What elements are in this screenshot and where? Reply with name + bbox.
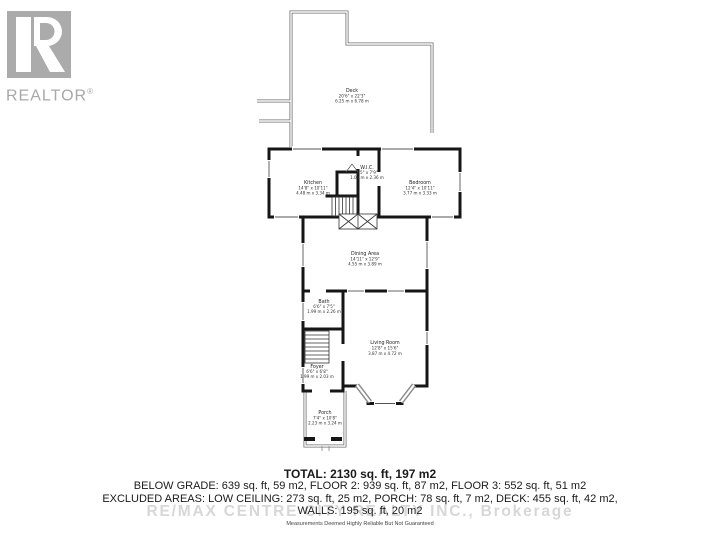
room-label-living: Living Room 12'8" x 15'6" 3.87 m x 4.72 … xyxy=(368,340,402,356)
room-label-deck: Deck 20'6" x 22'3" 6.25 m x 6.78 m xyxy=(335,88,369,104)
floor-plan: Deck 20'6" x 22'3" 6.25 m x 6.78 m Kitch… xyxy=(0,0,720,540)
svg-text:1.04 m x 2.36 m: 1.04 m x 2.36 m xyxy=(350,175,384,180)
svg-text:12'8" x 15'6": 12'8" x 15'6" xyxy=(372,346,399,351)
svg-text:4.55 m x 3.89 m: 4.55 m x 3.89 m xyxy=(348,262,382,267)
svg-text:1.99 m x 2.26 m: 1.99 m x 2.26 m xyxy=(307,309,341,314)
room-label-porch: Porch 7'4" x 10'8" 2.23 m x 3.24 m xyxy=(308,410,342,426)
svg-text:6.25 m x 6.78 m: 6.25 m x 6.78 m xyxy=(335,99,369,104)
staircase-lower xyxy=(305,331,329,363)
svg-text:3.77 m x 3.33 m: 3.77 m x 3.33 m xyxy=(403,191,437,196)
staircase-upper xyxy=(332,197,357,216)
summary-floors: BELOW GRADE: 639 sq. ft, 59 m2, FLOOR 2:… xyxy=(0,480,720,492)
svg-text:3.87 m x 4.72 m: 3.87 m x 4.72 m xyxy=(368,351,402,356)
svg-text:2.23 m x 3.24 m: 2.23 m x 3.24 m xyxy=(308,421,342,426)
low-ceiling-hatch xyxy=(339,214,377,229)
svg-text:4.48 m x 3.34 m: 4.48 m x 3.34 m xyxy=(296,191,330,196)
area-summary: TOTAL: 2130 sq. ft, 197 m2 BELOW GRADE: … xyxy=(0,468,720,528)
room-label-bath: Bath 6'6" x 7'5" 1.99 m x 2.26 m xyxy=(307,299,341,314)
room-label-bedroom: Bedroom 12'4" x 10'11" 3.77 m x 3.33 m xyxy=(403,180,437,196)
summary-total: TOTAL: 2130 sq. ft, 197 m2 xyxy=(0,468,720,480)
room-label-dining: Dining Area 14'11" x 12'9" 4.55 m x 3.89… xyxy=(348,251,382,267)
floorplan-page: { "logo": { "brand": "REALTOR", "registe… xyxy=(0,0,720,540)
deck-railing xyxy=(257,12,432,147)
summary-excluded: EXCLUDED AREAS: LOW CEILING: 273 sq. ft,… xyxy=(0,493,720,505)
summary-disclaimer: Measurements Deemed Highly Reliable But … xyxy=(0,521,720,528)
bay-window xyxy=(357,385,414,406)
svg-text:1.99 m x 2.03 m: 1.99 m x 2.03 m xyxy=(300,374,334,379)
summary-walls: WALLS: 195 sq. ft, 20 m2 xyxy=(0,505,720,517)
room-label-kitchen: Kitchen 14'8" x 10'11" 4.48 m x 3.34 m xyxy=(296,180,330,196)
